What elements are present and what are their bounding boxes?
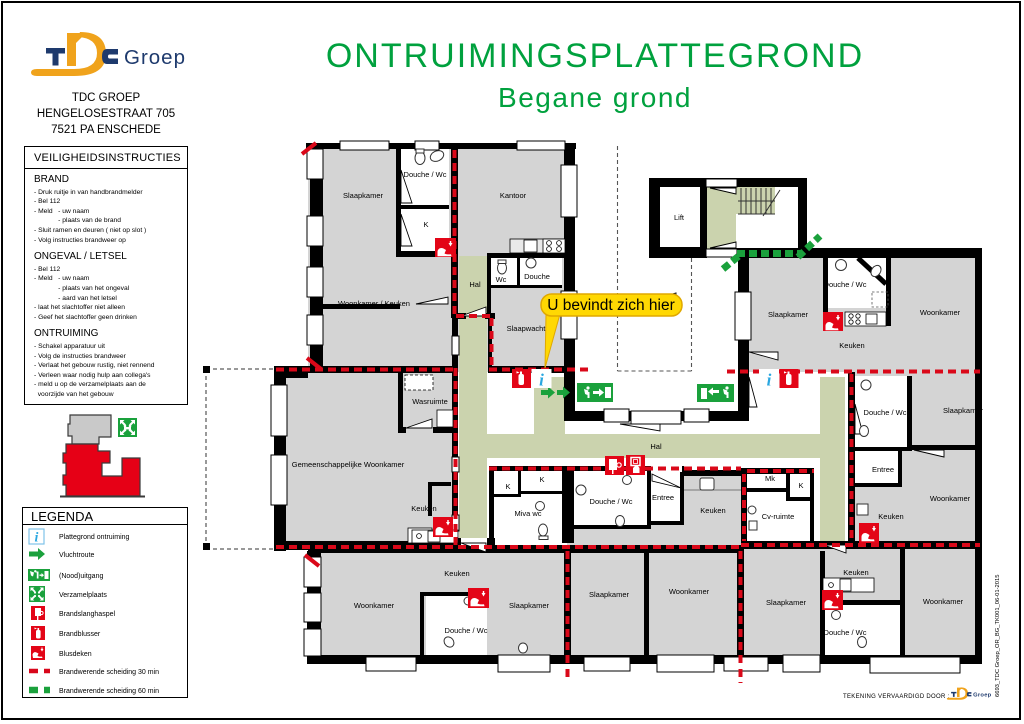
svg-text:Slaapkamer: Slaapkamer [509, 601, 550, 610]
svg-text:Hal: Hal [650, 442, 662, 451]
svg-text:K: K [505, 482, 510, 491]
svg-text:Lift: Lift [674, 213, 685, 222]
svg-text:Keuken: Keuken [843, 568, 868, 577]
svg-text:Wasruimte: Wasruimte [412, 397, 448, 406]
svg-text:Keuken: Keuken [444, 569, 469, 578]
svg-text:Douche / Wc: Douche / Wc [445, 626, 488, 635]
svg-text:Hal: Hal [469, 280, 481, 289]
svg-text:Wc: Wc [496, 275, 507, 284]
svg-text:Douche / Wc: Douche / Wc [864, 408, 907, 417]
svg-text:K: K [798, 481, 803, 490]
svg-text:Miva wc: Miva wc [514, 509, 541, 518]
svg-text:Groep: Groep [973, 692, 992, 698]
svg-text:Woonkamer: Woonkamer [920, 308, 961, 317]
svg-text:Slaapwacht: Slaapwacht [507, 324, 547, 333]
svg-text:Kantoor: Kantoor [500, 191, 527, 200]
svg-text:i: i [767, 371, 772, 390]
svg-text:Slaapkamer: Slaapkamer [768, 310, 809, 319]
svg-text:Douche / Wc: Douche / Wc [404, 170, 447, 179]
svg-text:Douche: Douche [524, 272, 550, 281]
svg-text:Slaapkamer: Slaapkamer [343, 191, 384, 200]
svg-text:Douche / Wc: Douche / Wc [590, 497, 633, 506]
svg-text:Woonkamer: Woonkamer [354, 601, 395, 610]
svg-text:i: i [539, 371, 544, 390]
svg-text:Woonkamer: Woonkamer [930, 494, 971, 503]
svg-text:Entree: Entree [652, 493, 674, 502]
svg-text:K: K [539, 475, 544, 484]
svg-text:Keuken: Keuken [839, 341, 864, 350]
svg-text:Woonkamer: Woonkamer [669, 587, 710, 596]
svg-text:Slaapkamer: Slaapkamer [943, 406, 984, 415]
svg-text:Woonkamer: Woonkamer [923, 597, 964, 606]
svg-text:Douche / Wc: Douche / Wc [824, 280, 867, 289]
svg-text:Slaapkamer: Slaapkamer [589, 590, 630, 599]
svg-text:Douche / Wc: Douche / Wc [824, 628, 867, 637]
svg-text:Keuken: Keuken [411, 504, 436, 513]
svg-text:Cv-ruimte: Cv-ruimte [762, 512, 795, 521]
svg-text:Slaapkamer: Slaapkamer [766, 598, 807, 607]
svg-text:K: K [423, 220, 428, 229]
svg-text:Woonkamer / Keuken: Woonkamer / Keuken [338, 299, 410, 308]
svg-text:Keuken: Keuken [878, 512, 903, 521]
svg-text:U bevindt zich hier: U bevindt zich hier [547, 297, 675, 314]
svg-text:Entree: Entree [872, 465, 894, 474]
svg-text:Gemeenschappelijke Woonkamer: Gemeenschappelijke Woonkamer [292, 460, 405, 469]
svg-text:Keuken: Keuken [700, 506, 725, 515]
svg-text:Mk: Mk [765, 474, 775, 483]
